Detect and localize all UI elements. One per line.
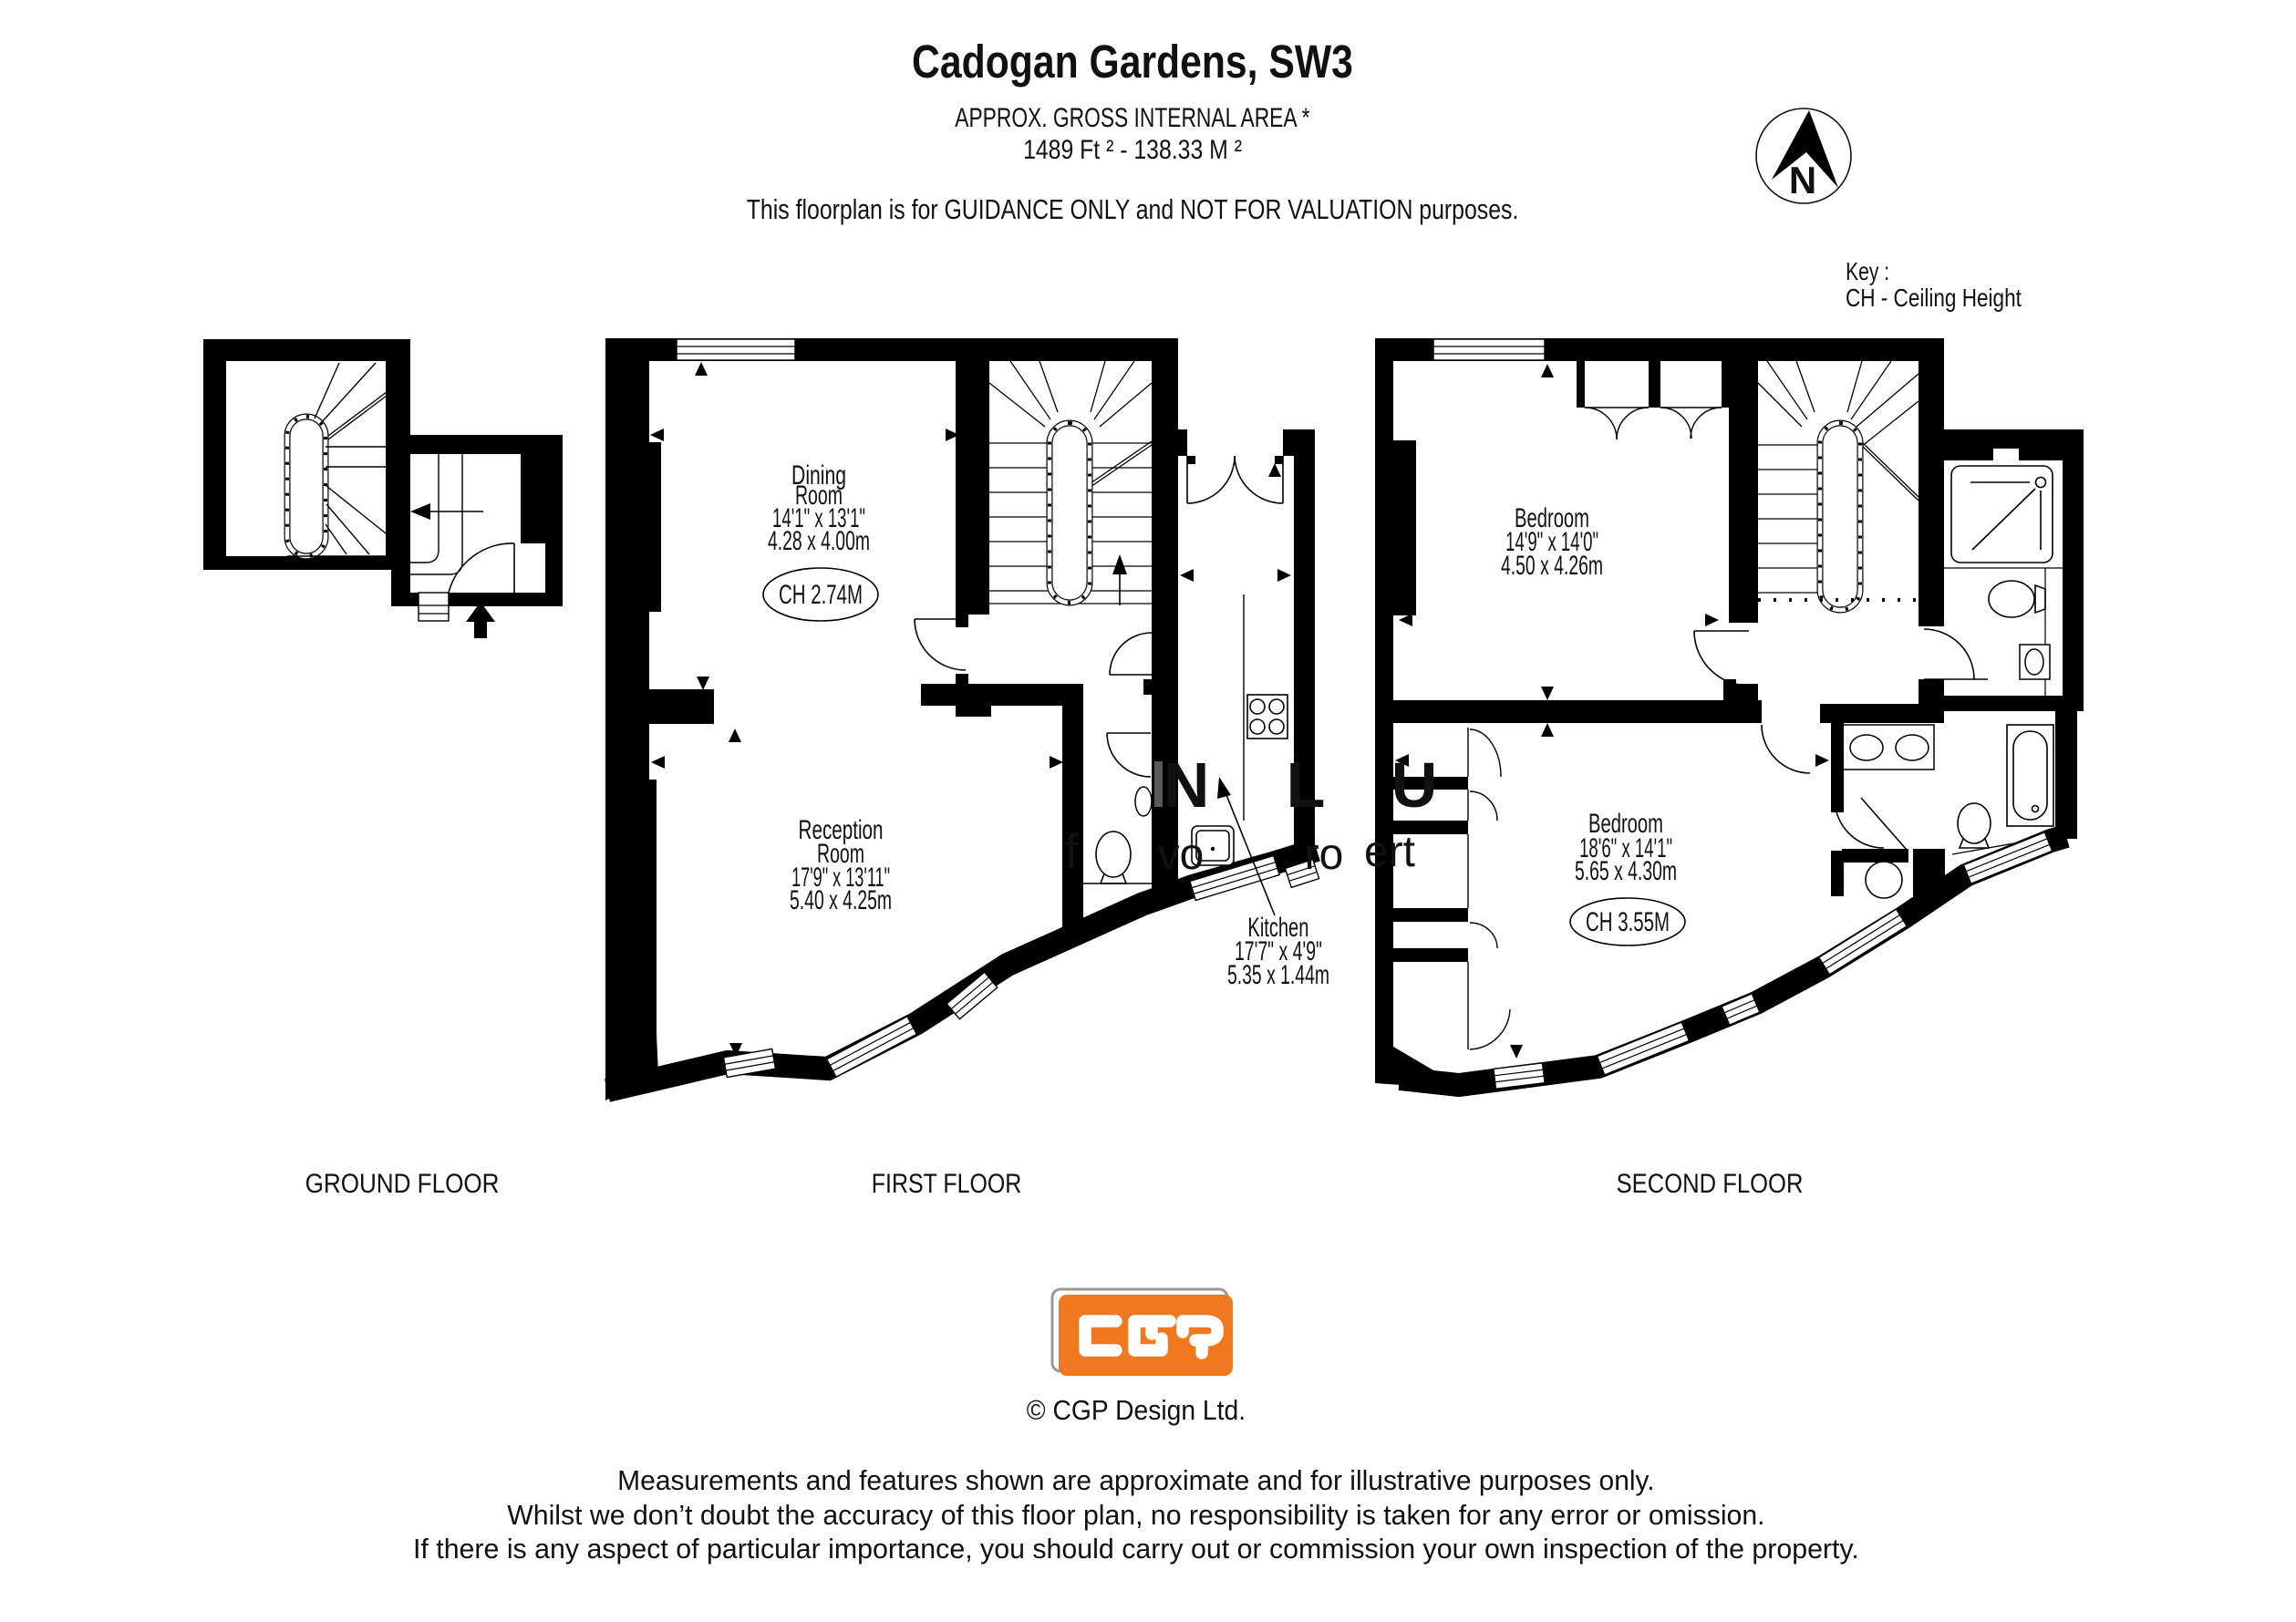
svg-text:f: f — [1064, 824, 1079, 879]
svg-text:4.28 x 4.00m: 4.28 x 4.00m — [768, 526, 870, 556]
svg-text:If there is any aspect of part: If there is any aspect of particular imp… — [413, 1534, 1859, 1565]
svg-text:Cadogan Gardens, SW3: Cadogan Gardens, SW3 — [912, 35, 1353, 87]
svg-text:CH 3.55M: CH 3.55M — [1586, 907, 1670, 937]
svg-text:4.50 x 4.26m: 4.50 x 4.26m — [1501, 551, 1603, 581]
svg-text:SECOND FLOOR: SECOND FLOOR — [1617, 1168, 1804, 1198]
svg-text:GROUND FLOOR: GROUND FLOOR — [305, 1168, 500, 1198]
svg-text:ro: ro — [1305, 831, 1344, 879]
svg-text:1489 Ft ² - 138.33 M ²: 1489 Ft ² - 138.33 M ² — [1023, 134, 1242, 165]
svg-text:APPROX. GROSS INTERNAL AREA *: APPROX. GROSS INTERNAL AREA * — [955, 102, 1309, 133]
svg-text:ert: ert — [1364, 828, 1415, 876]
svg-text:N: N — [1164, 749, 1210, 821]
svg-text:5.65 x 4.30m: 5.65 x 4.30m — [1575, 856, 1677, 886]
svg-text:Key :: Key : — [1846, 258, 1889, 286]
svg-text:Measurements and features show: Measurements and features shown are appr… — [617, 1465, 1654, 1497]
svg-text:N: N — [1789, 159, 1816, 201]
svg-text:5.35 x 1.44m: 5.35 x 1.44m — [1227, 960, 1329, 990]
svg-text:L: L — [1287, 749, 1326, 821]
svg-text:© CGP Design Ltd.: © CGP Design Ltd. — [1027, 1395, 1246, 1426]
svg-text:This floorplan is for GUIDANCE: This floorplan is for GUIDANCE ONLY and … — [747, 193, 1519, 224]
svg-text:5.40 x 4.25m: 5.40 x 4.25m — [790, 885, 892, 915]
svg-text:Whilst we don’t doubt the accu: Whilst we don’t doubt the accuracy of th… — [507, 1500, 1764, 1531]
svg-text:CH 2.74M: CH 2.74M — [779, 580, 863, 610]
svg-text:vo: vo — [1158, 831, 1205, 879]
svg-text:CH - Ceiling Height: CH - Ceiling Height — [1846, 284, 2022, 313]
svg-text:FIRST FLOOR: FIRST FLOOR — [872, 1168, 1021, 1199]
svg-text:U: U — [1391, 749, 1438, 821]
